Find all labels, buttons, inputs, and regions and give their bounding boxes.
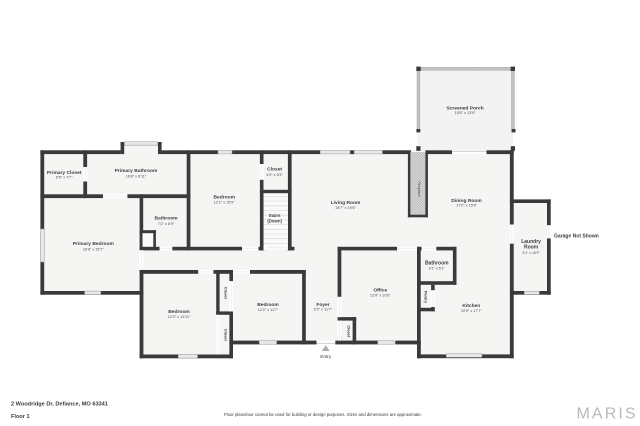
svg-text:19'7" x 19'6": 19'7" x 19'6" [335, 206, 356, 210]
svg-text:6'1" x 15'3": 6'1" x 15'3" [522, 251, 540, 255]
svg-text:Room: Room [524, 245, 539, 251]
svg-text:Closet: Closet [267, 167, 282, 173]
svg-text:Primary Bedroom: Primary Bedroom [73, 241, 115, 247]
svg-text:Closet: Closet [347, 325, 352, 338]
svg-text:Closet: Closet [223, 287, 228, 300]
svg-text:Primary Bathroom: Primary Bathroom [115, 168, 158, 174]
svg-text:MARIS: MARIS [577, 406, 638, 423]
svg-text:Bedroom: Bedroom [257, 302, 279, 308]
svg-text:12'1" x 15'9": 12'1" x 15'9" [214, 200, 235, 204]
svg-text:Floor plans/tour cannot be use: Floor plans/tour cannot be used for buil… [224, 412, 422, 417]
svg-text:Fireplace: Fireplace [417, 181, 421, 197]
svg-text:Entry: Entry [320, 354, 332, 359]
svg-text:15'6" x 13'9": 15'6" x 13'9" [455, 111, 476, 115]
svg-text:10'5" x 17'7": 10'5" x 17'7" [461, 309, 482, 313]
svg-text:7'2" x 8'9": 7'2" x 8'9" [158, 222, 175, 226]
svg-text:Kitchen: Kitchen [462, 303, 480, 309]
svg-text:Bathroom: Bathroom [154, 216, 178, 222]
svg-text:2 Woodridge Dr, Defiance, MO 6: 2 Woodridge Dr, Defiance, MO 63341 [11, 402, 108, 408]
svg-text:5'3" x 11'7": 5'3" x 11'7" [314, 308, 333, 312]
svg-text:Floor 1: Floor 1 [11, 414, 30, 420]
svg-text:12'3" x 13'11": 12'3" x 13'11" [168, 315, 191, 319]
svg-text:16'8" x 15'7": 16'8" x 15'7" [83, 248, 104, 252]
svg-text:Bedroom: Bedroom [168, 309, 190, 315]
svg-text:Pantry: Pantry [424, 291, 429, 304]
svg-text:6'1" x 5'1": 6'1" x 5'1" [429, 267, 446, 271]
svg-text:Garage Not Shown: Garage Not Shown [554, 234, 599, 240]
svg-text:6'5" x 7'7": 6'5" x 7'7" [56, 176, 73, 180]
svg-text:12'2" x 11'7": 12'2" x 11'7" [258, 308, 279, 312]
svg-text:Stairs: Stairs [269, 213, 282, 218]
svg-text:17'0" x 15'9": 17'0" x 15'9" [456, 204, 477, 208]
svg-text:12'9" x 10'6": 12'9" x 10'6" [370, 293, 391, 297]
svg-text:4'3" x 6'3": 4'3" x 6'3" [266, 173, 283, 177]
svg-text:Closet: Closet [223, 329, 228, 342]
svg-text:(Down): (Down) [267, 219, 282, 224]
svg-text:16'8" x 8'11": 16'8" x 8'11" [126, 175, 147, 179]
